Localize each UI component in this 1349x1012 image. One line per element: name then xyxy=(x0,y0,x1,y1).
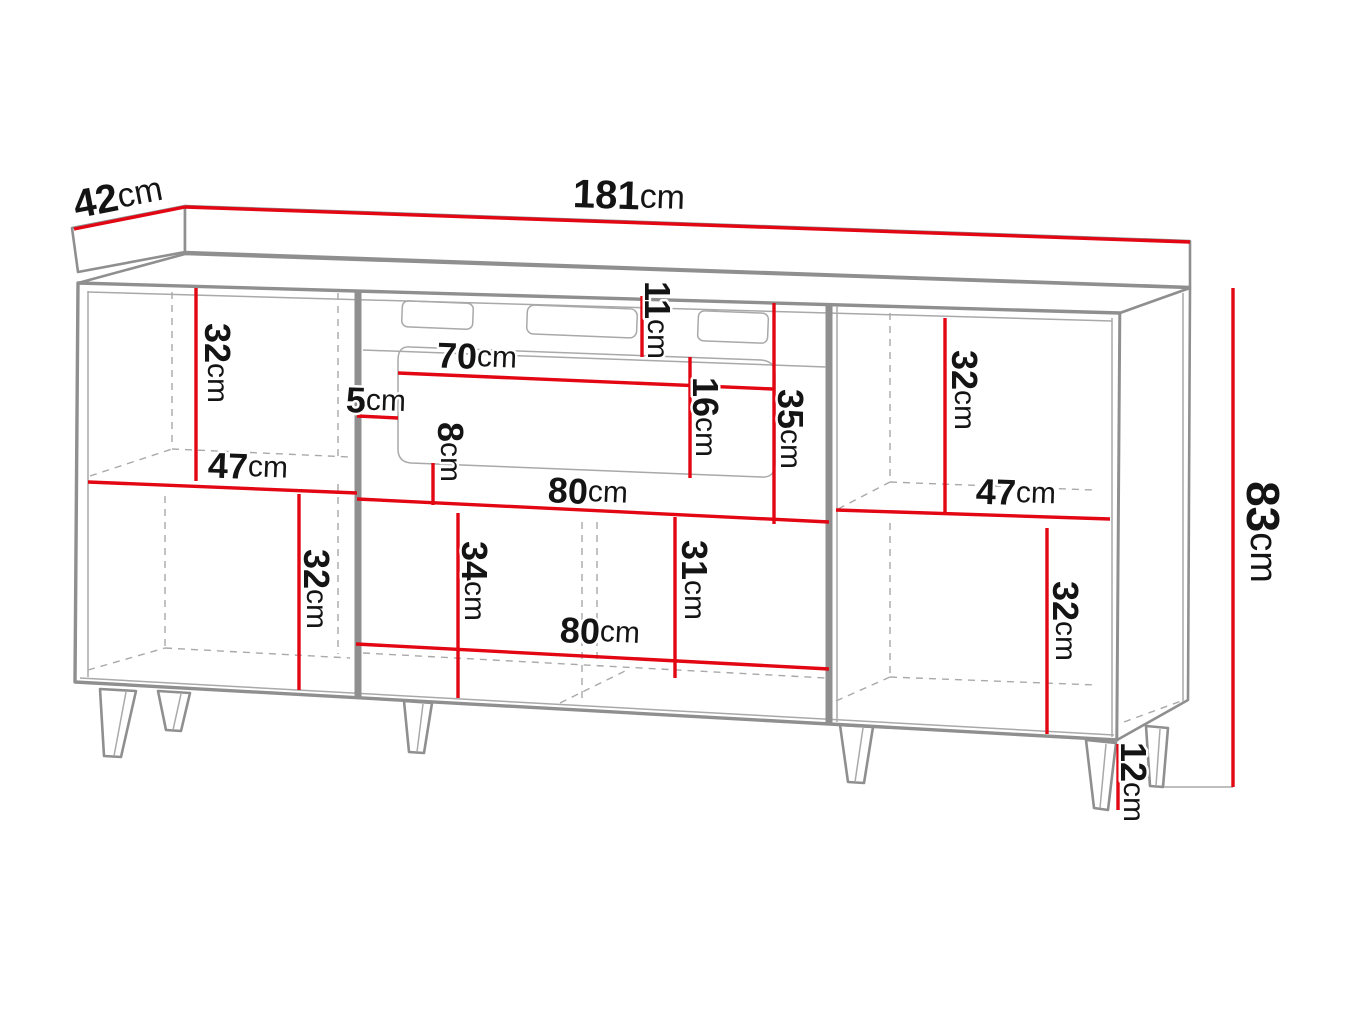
furniture-dimension-diagram: 42cm 181cm 83cm 32cm 47cm 32cm 5cm 11cm … xyxy=(0,0,1349,1012)
dim-label-lower-right-height: 32cm xyxy=(1046,581,1087,661)
diagram-canvas: 42cm 181cm 83cm 32cm 47cm 32cm 5cm 11cm … xyxy=(0,0,1349,1012)
dim-label-upper-left-height: 32cm xyxy=(198,323,239,403)
dim-label-width: 181cm xyxy=(572,172,686,220)
dim-label-middle-right-drawer-height: 31cm xyxy=(675,540,716,620)
dim-label-leg-height: 12cm xyxy=(1114,742,1155,822)
front-left-leg xyxy=(100,689,136,757)
dim-label-left-shelf-width: 47cm xyxy=(207,444,289,488)
dim-label-opening-width: 70cm xyxy=(436,334,518,378)
dim-label-fireplace-top-gap: 11cm xyxy=(638,281,679,359)
right-side-face xyxy=(1117,288,1190,740)
dim-label-fireplace-side-gap: 5cm xyxy=(345,378,406,421)
dim-label-panel-width: 80cm xyxy=(547,469,629,514)
dim-label-fireplace-bottom-gap: 8cm xyxy=(431,422,472,482)
dim-label-insert-height: 16cm xyxy=(686,377,727,457)
dim-label-middle-drawer-width: 80cm xyxy=(559,609,641,654)
dim-label-middle-drawer-height: 34cm xyxy=(455,541,496,621)
dim-label-height: 83cm xyxy=(1237,481,1289,583)
dim-label-panel-height: 35cm xyxy=(771,389,812,469)
dim-label-right-shelf-width: 47cm xyxy=(975,470,1056,514)
dim-label-upper-right-height: 32cm xyxy=(945,350,986,430)
dim-label-lower-left-height: 32cm xyxy=(297,549,338,629)
